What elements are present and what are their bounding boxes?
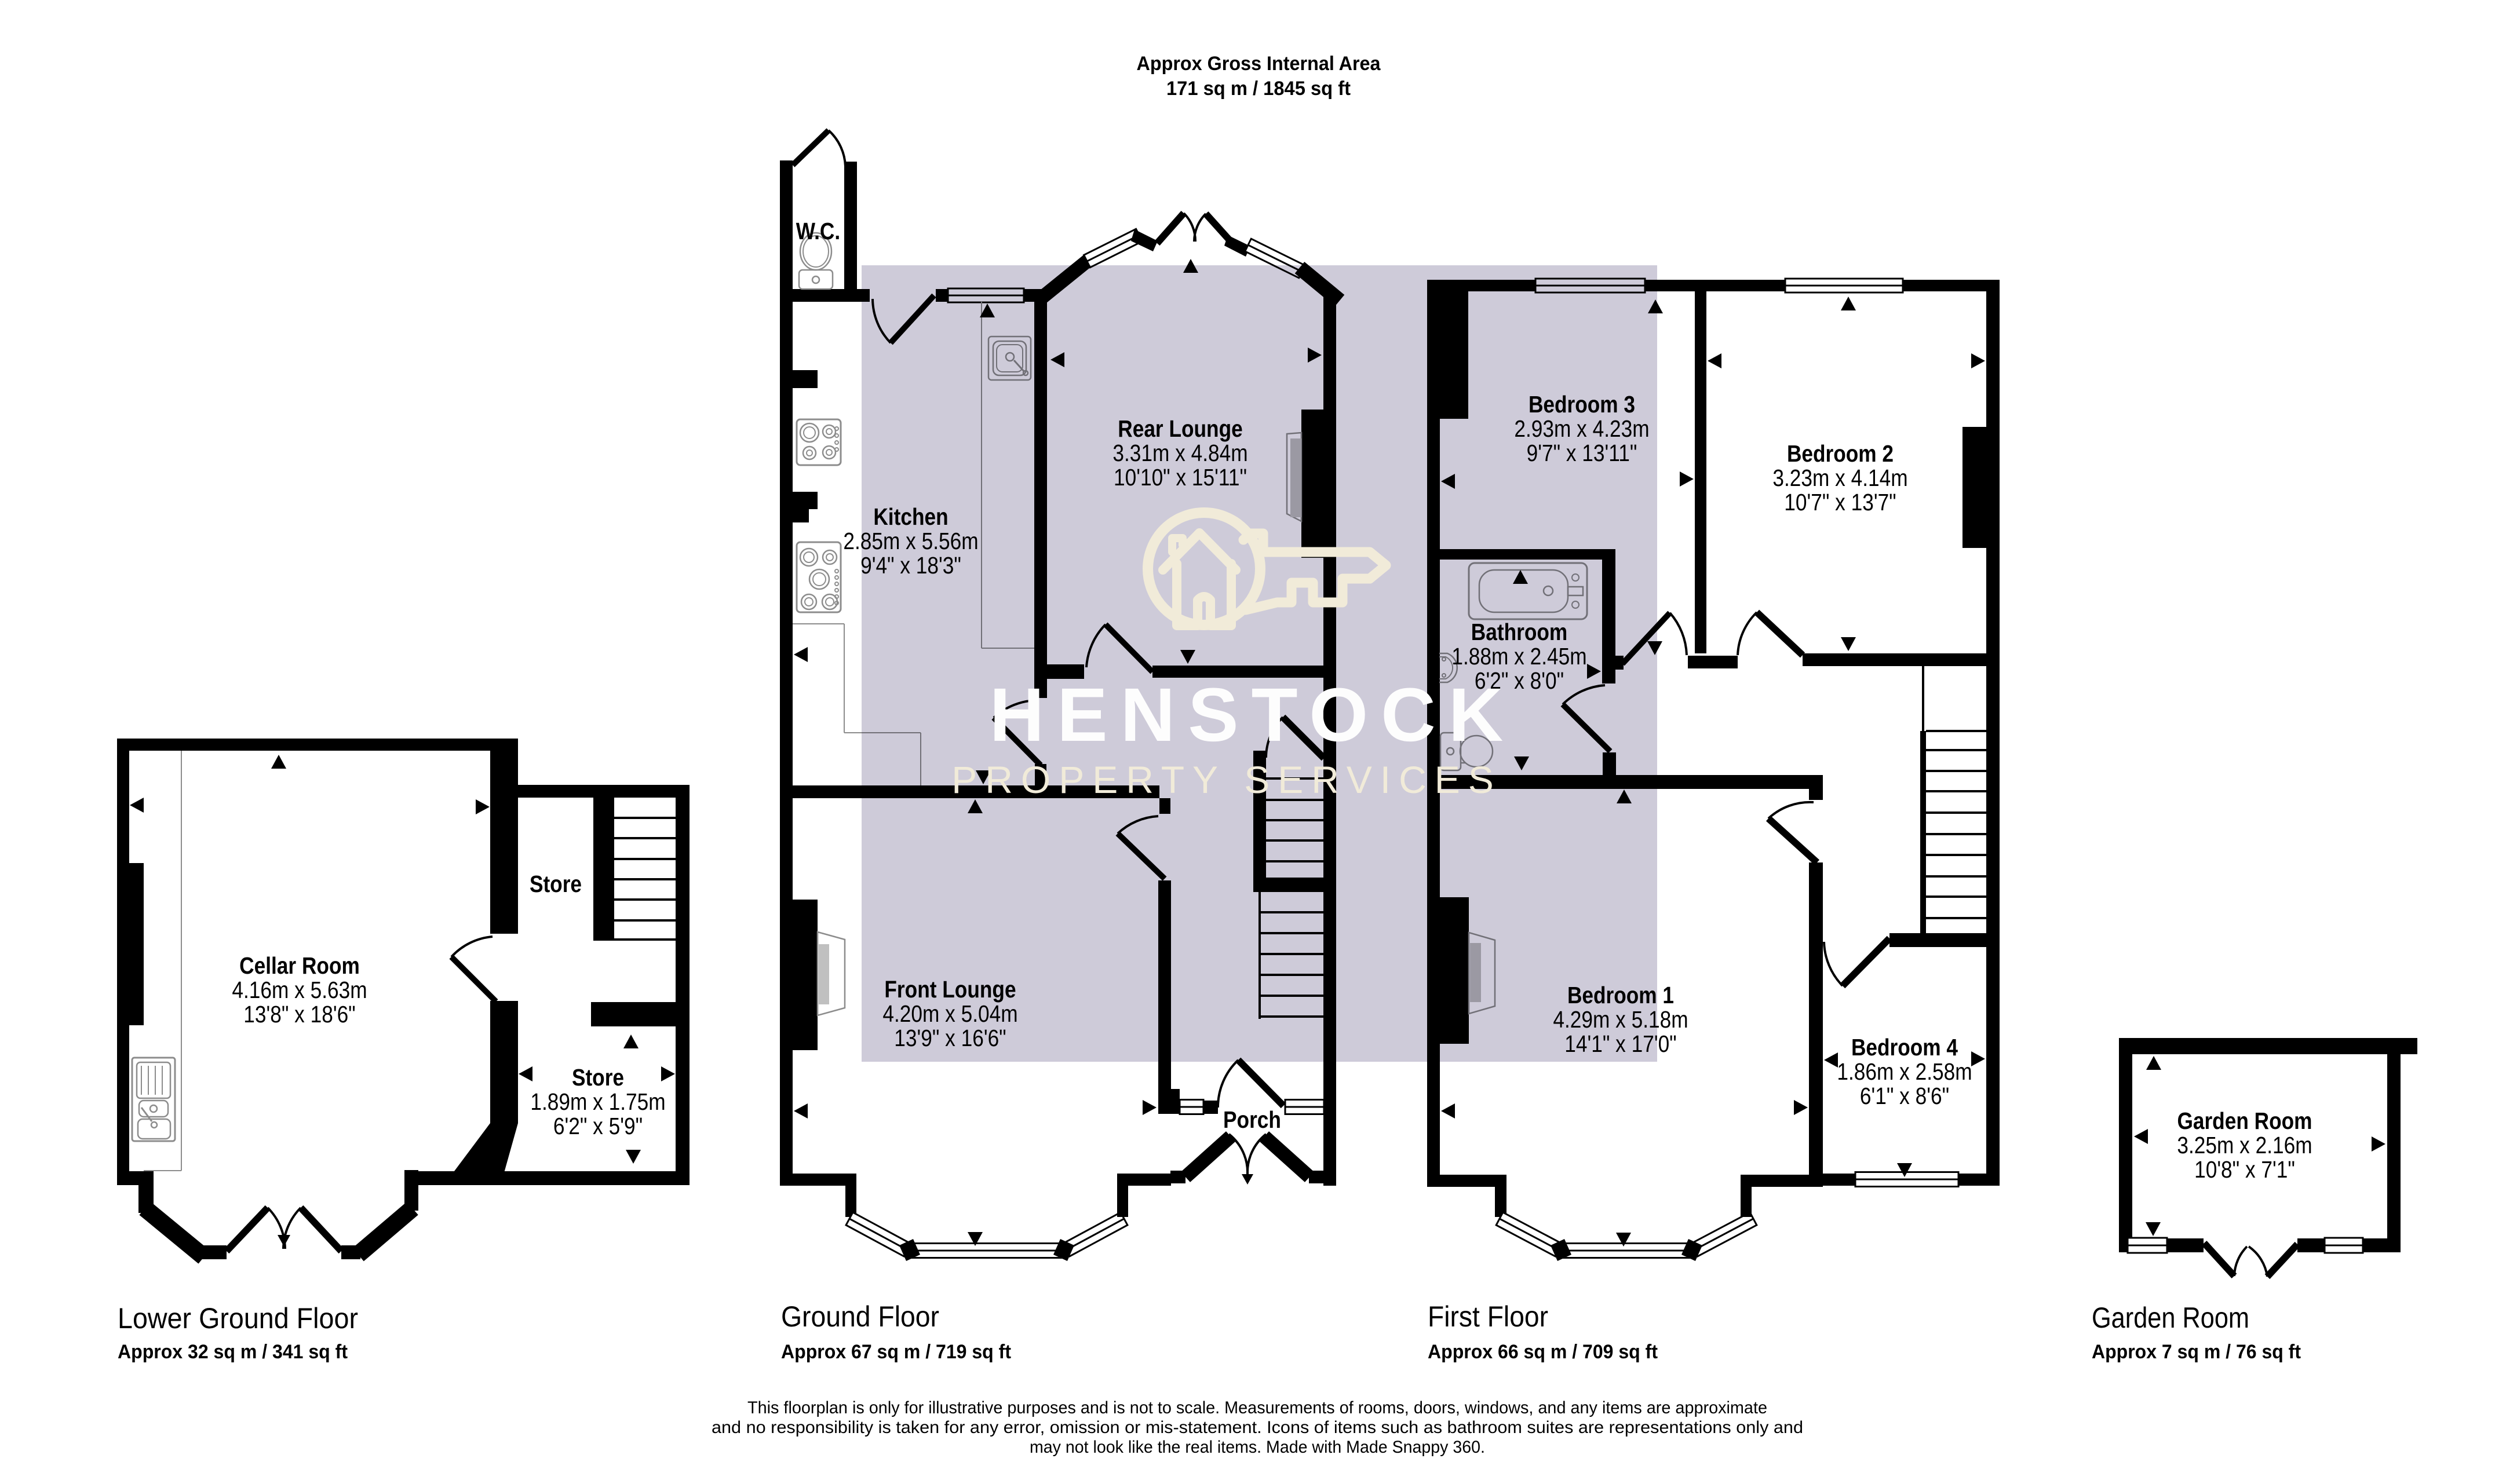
svg-text:Cellar Room: Cellar Room bbox=[239, 952, 360, 979]
svg-text:4.16m x 5.63m: 4.16m x 5.63m bbox=[232, 977, 367, 1003]
svg-text:10'8" x 7'1": 10'8" x 7'1" bbox=[2194, 1156, 2295, 1183]
svg-text:Ground Floor: Ground Floor bbox=[781, 1300, 939, 1333]
svg-text:Approx 67 sq m / 719 sq ft: Approx 67 sq m / 719 sq ft bbox=[781, 1341, 1011, 1363]
svg-text:may not look like the real ite: may not look like the real items. Made w… bbox=[1030, 1438, 1485, 1457]
svg-text:10'7" x 13'7": 10'7" x 13'7" bbox=[1784, 489, 1896, 516]
svg-text:1.86m x 2.58m: 1.86m x 2.58m bbox=[1837, 1058, 1972, 1085]
svg-text:PROPERTY SERVICES: PROPERTY SERVICES bbox=[951, 758, 1502, 801]
svg-text:1.89m x 1.75m: 1.89m x 1.75m bbox=[530, 1088, 665, 1115]
svg-text:Store: Store bbox=[572, 1064, 624, 1091]
svg-text:13'8" x 18'6": 13'8" x 18'6" bbox=[243, 1001, 355, 1028]
svg-text:Approx 32 sq m / 341 sq ft: Approx 32 sq m / 341 sq ft bbox=[118, 1341, 348, 1363]
svg-text:Garden Room: Garden Room bbox=[2177, 1107, 2312, 1134]
svg-text:Approx 66 sq m / 709 sq ft: Approx 66 sq m / 709 sq ft bbox=[1428, 1341, 1658, 1363]
svg-text:This floorplan is only for ill: This floorplan is only for illustrative … bbox=[747, 1398, 1767, 1417]
svg-text:Approx 7 sq m / 76 sq ft: Approx 7 sq m / 76 sq ft bbox=[2092, 1341, 2301, 1363]
svg-text:Garden Room: Garden Room bbox=[2092, 1302, 2249, 1334]
svg-text:and no responsibility is taken: and no responsibility is taken for any e… bbox=[712, 1418, 1803, 1437]
svg-text:Bedroom 2: Bedroom 2 bbox=[1787, 440, 1894, 467]
svg-text:6'1" x 8'6": 6'1" x 8'6" bbox=[1860, 1083, 1949, 1109]
svg-text:3.23m x 4.14m: 3.23m x 4.14m bbox=[1772, 465, 1907, 491]
svg-text:W.C.: W.C. bbox=[796, 218, 840, 244]
svg-text:Porch: Porch bbox=[1223, 1106, 1281, 1133]
svg-text:Approx Gross Internal Area: Approx Gross Internal Area bbox=[1137, 53, 1381, 75]
svg-text:3.25m x 2.16m: 3.25m x 2.16m bbox=[2177, 1132, 2312, 1158]
svg-text:6'2" x 5'9": 6'2" x 5'9" bbox=[553, 1113, 643, 1139]
svg-text:Store: Store bbox=[530, 871, 582, 897]
svg-text:171 sq m / 1845 sq ft: 171 sq m / 1845 sq ft bbox=[1166, 78, 1351, 100]
svg-text:Bedroom 4: Bedroom 4 bbox=[1851, 1034, 1958, 1061]
svg-text:First Floor: First Floor bbox=[1428, 1300, 1548, 1333]
svg-text:HENSTOCK: HENSTOCK bbox=[990, 672, 1516, 757]
svg-text:Lower Ground Floor: Lower Ground Floor bbox=[118, 1302, 358, 1335]
